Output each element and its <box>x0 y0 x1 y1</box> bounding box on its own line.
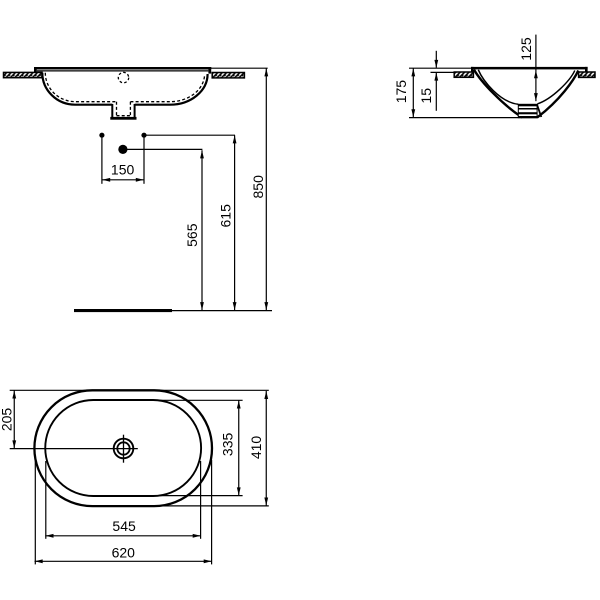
svg-text:335: 335 <box>220 433 236 457</box>
svg-text:15: 15 <box>418 88 434 104</box>
svg-text:545: 545 <box>112 518 136 534</box>
svg-text:205: 205 <box>0 408 14 432</box>
svg-text:150: 150 <box>111 162 135 178</box>
svg-text:850: 850 <box>250 175 266 199</box>
svg-text:410: 410 <box>248 436 264 460</box>
svg-text:620: 620 <box>112 544 136 560</box>
svg-text:125: 125 <box>518 37 534 61</box>
svg-text:175: 175 <box>393 80 409 104</box>
svg-text:615: 615 <box>218 204 234 228</box>
svg-text:565: 565 <box>184 223 200 247</box>
